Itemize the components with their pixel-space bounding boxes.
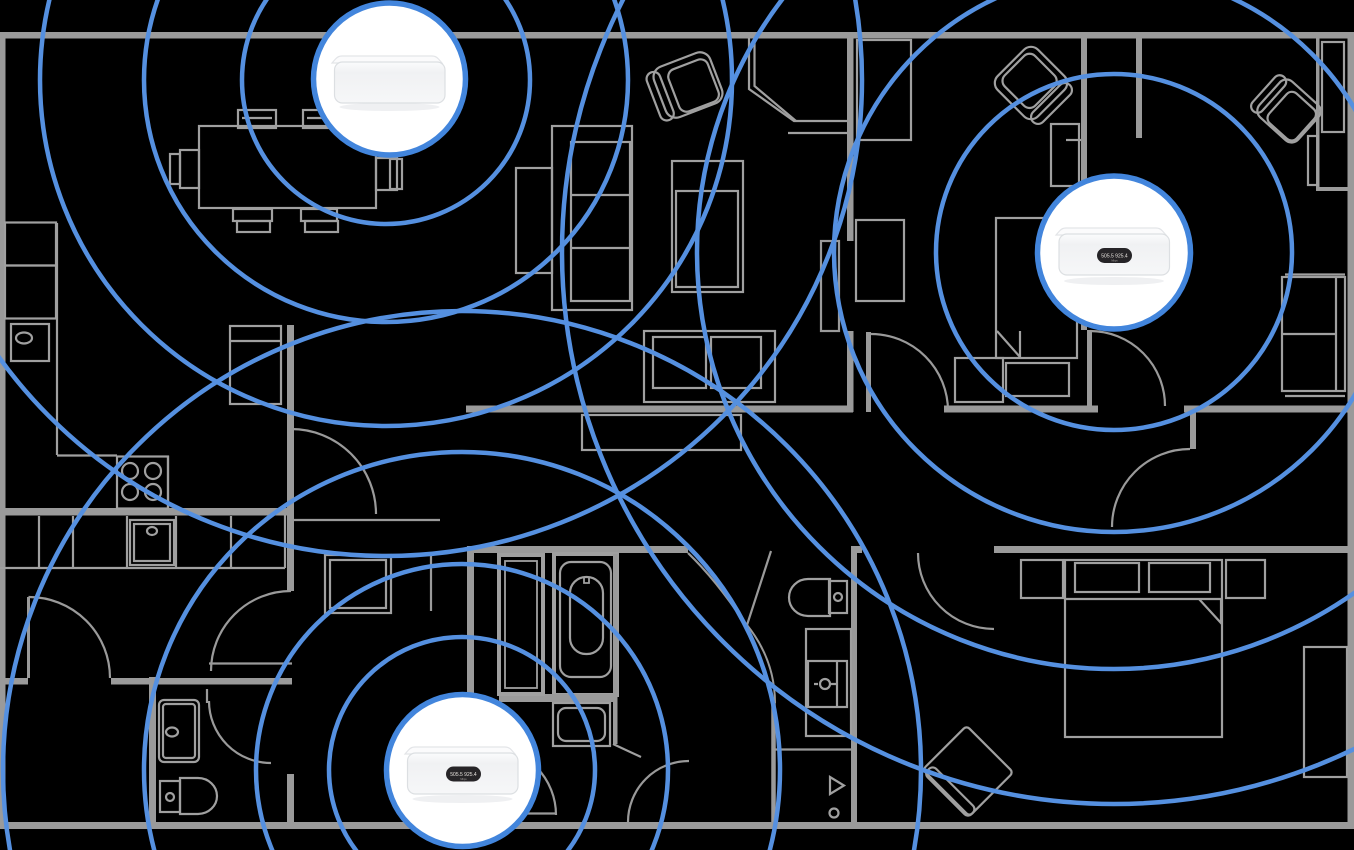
svg-text:Mbps: Mbps xyxy=(460,777,467,781)
svg-text:Mbps: Mbps xyxy=(1111,259,1118,263)
